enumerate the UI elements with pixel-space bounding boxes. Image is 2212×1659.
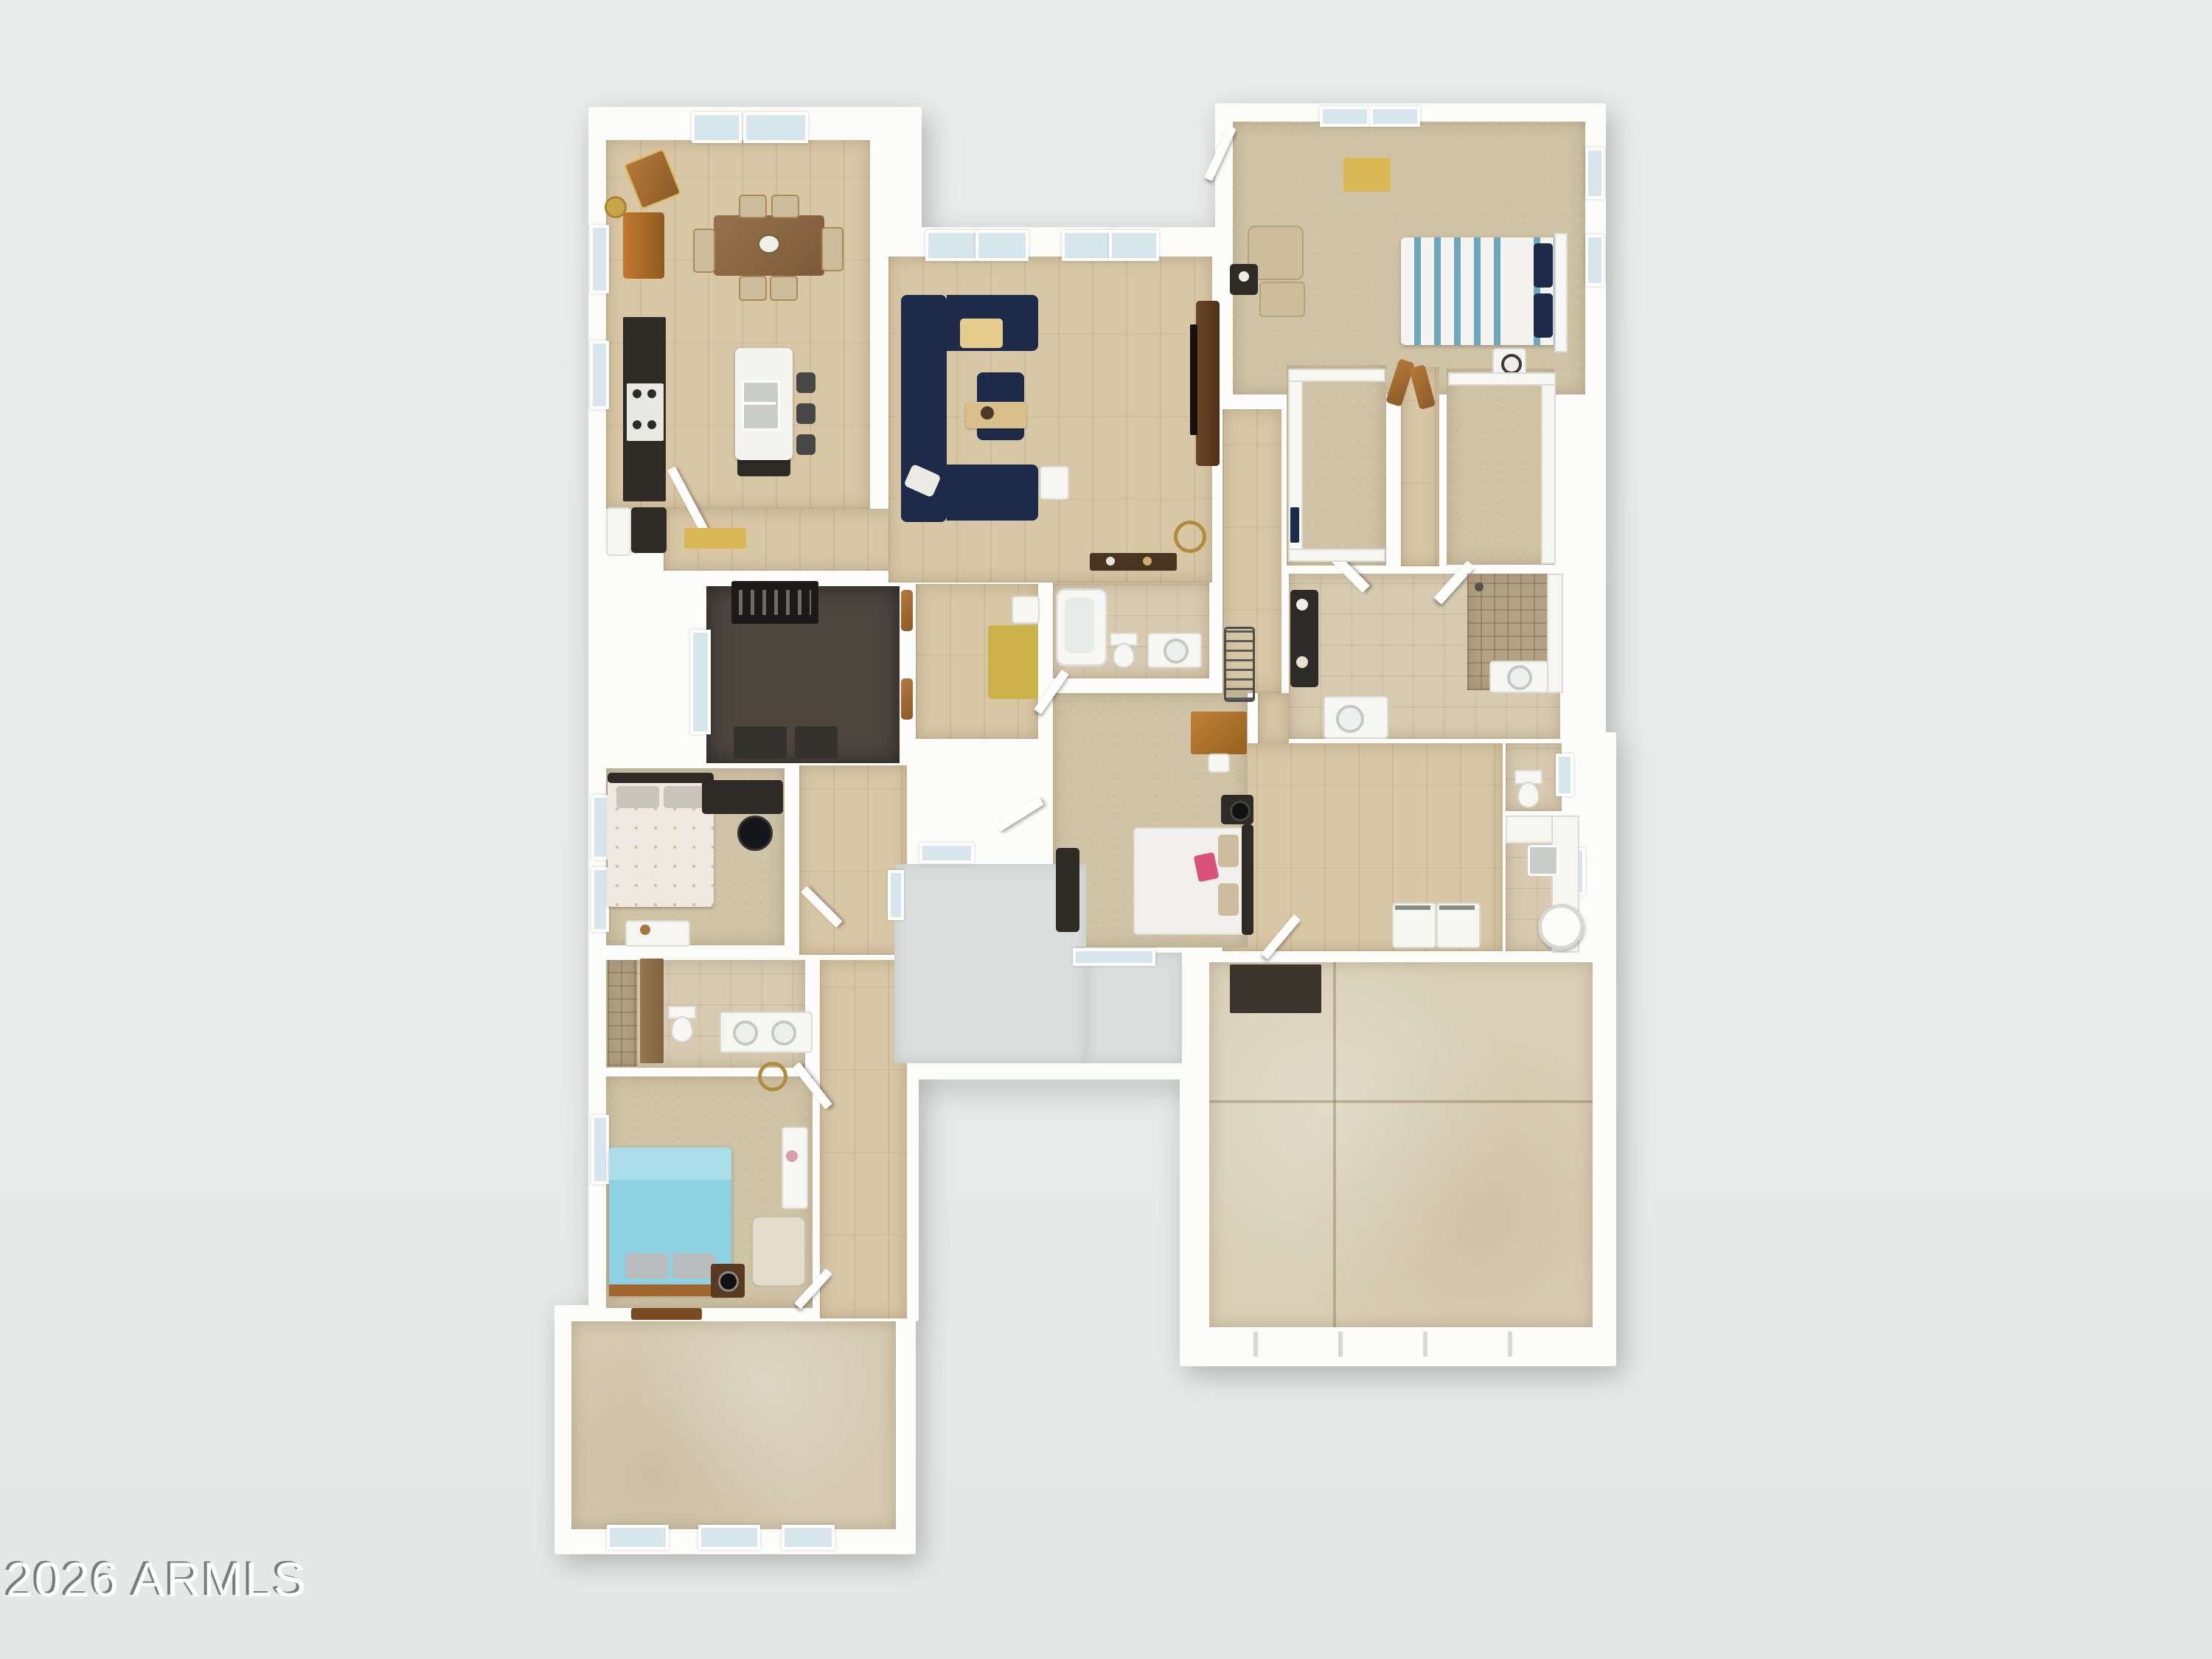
bar-stool	[796, 403, 815, 424]
window	[1585, 147, 1604, 199]
shower-head	[1475, 582, 1484, 591]
window	[590, 341, 609, 409]
appliance-control-strip	[1439, 905, 1475, 910]
nook-vanity	[1012, 596, 1040, 624]
toilet-bowl	[671, 1016, 693, 1043]
gym-equipment	[734, 726, 787, 759]
window	[1073, 948, 1155, 966]
bed-pillow	[616, 786, 659, 808]
dining-chair	[771, 195, 799, 218]
garage-joint-vertical	[1333, 962, 1336, 1327]
garage-door-seam	[1423, 1332, 1427, 1357]
window	[782, 1525, 835, 1550]
bed-pillow	[1218, 835, 1239, 867]
desk-stool	[1208, 754, 1230, 773]
master-bed-pillow	[1534, 243, 1553, 288]
dining-chair	[693, 229, 715, 273]
table-centerpiece	[759, 236, 779, 252]
island-sink-divider	[742, 402, 776, 405]
dining-chair	[770, 276, 798, 301]
closet-shelf	[1448, 372, 1556, 386]
bar-stool	[796, 372, 815, 393]
hall-corridor-stub	[1258, 693, 1289, 745]
window	[698, 1525, 760, 1550]
office-chair	[737, 815, 773, 851]
garage-door-seam	[1338, 1332, 1343, 1357]
bedroom3-desk	[702, 780, 783, 814]
closet-shelf	[1288, 549, 1385, 562]
window	[591, 795, 609, 860]
bedroom2-headboard	[1242, 824, 1253, 935]
garage-floor	[1209, 962, 1593, 1327]
closet-shelf	[1541, 372, 1556, 564]
master-headboard	[1554, 233, 1568, 352]
watermark: 2026 ARMLS	[6, 1551, 307, 1607]
window	[590, 225, 609, 293]
window	[888, 870, 904, 920]
bed-bench	[1343, 158, 1391, 192]
water-heater	[1538, 904, 1584, 950]
window	[1556, 754, 1573, 796]
vanity-sink	[1164, 639, 1189, 664]
barbell-row	[739, 590, 811, 615]
window	[1320, 106, 1370, 127]
bedroom2-desk	[1191, 712, 1247, 754]
appliance-control-strip	[1395, 905, 1430, 910]
hanging-clothes	[1290, 507, 1299, 543]
dining-chair	[821, 227, 844, 271]
flower-vase	[786, 1150, 798, 1162]
island-sink	[742, 380, 780, 431]
closet-right-floor	[1447, 369, 1554, 565]
closet-shelf	[1288, 369, 1385, 382]
garage-door-seam	[1253, 1332, 1258, 1357]
range-burner	[633, 420, 641, 429]
bedroom4-armchair	[751, 1215, 807, 1287]
gym-wood-door	[901, 678, 913, 720]
shower-ledge	[1547, 574, 1563, 693]
speaker	[1230, 801, 1251, 821]
sofa-throw-blanket	[960, 319, 1003, 348]
patio-grill	[631, 1308, 702, 1320]
refrigerator	[606, 507, 631, 556]
buffet-cabinet	[623, 212, 664, 279]
floor-plan	[0, 0, 2212, 1659]
window	[591, 1115, 609, 1184]
towel-stack	[1296, 599, 1308, 611]
speaker-cone	[718, 1271, 739, 1292]
bedroom3-bench	[625, 920, 690, 947]
toilet-bowl	[1517, 782, 1540, 808]
bed-pillow	[625, 1253, 668, 1279]
wall-porch-south	[894, 1063, 1194, 1079]
vanity-sink	[733, 1020, 758, 1046]
wall-clock	[605, 196, 627, 218]
decor-item	[640, 925, 650, 935]
vanity-sink	[1507, 665, 1532, 690]
floor-lamp	[1174, 521, 1206, 553]
window	[1370, 106, 1420, 127]
hall-runner-rug	[684, 528, 746, 549]
decor-item	[1106, 557, 1115, 566]
dining-chair	[739, 276, 767, 301]
window	[743, 112, 808, 143]
window	[1585, 234, 1604, 286]
tv-console	[1196, 301, 1220, 466]
utility-sink	[1528, 845, 1559, 876]
bedroom3-headboard	[608, 773, 714, 783]
window	[692, 112, 742, 143]
range-burner	[647, 389, 656, 398]
side-table	[1040, 466, 1069, 500]
garage-door-seam	[1508, 1332, 1512, 1357]
garage-mat	[1230, 964, 1321, 1013]
daybed-bench	[988, 625, 1038, 699]
sliding-glass-door	[975, 230, 1029, 261]
bedroom2-dresser	[1056, 848, 1079, 932]
range-burner	[633, 389, 641, 398]
kitchen-lower-cabinet	[631, 507, 667, 553]
chair-ottoman	[1259, 282, 1305, 317]
bar-stool	[796, 434, 815, 455]
sliding-glass-door	[1109, 230, 1159, 261]
bed-pillow	[664, 786, 706, 808]
bedroom4-desk	[782, 1127, 808, 1209]
bathtub-basin	[1065, 597, 1094, 653]
left-hall-upper-floor	[799, 765, 907, 955]
window	[690, 630, 711, 734]
toilet-bowl	[1113, 643, 1135, 668]
sliding-glass-door	[1062, 230, 1112, 261]
master-bed-sheet	[1504, 237, 1534, 345]
screenshot-canvas: { "watermark": { "text": "2026 ARMLS" },…	[0, 0, 2212, 1659]
bath2-shower	[608, 960, 637, 1066]
gym-equipment	[795, 726, 838, 759]
bath2-barn-door	[640, 959, 664, 1063]
media-console-table	[1090, 553, 1177, 571]
bed-pillow	[1218, 883, 1239, 916]
patio-floor	[571, 1321, 896, 1529]
dining-chair	[739, 195, 767, 218]
tv-screen	[1190, 324, 1197, 435]
sliding-glass-door	[925, 230, 978, 261]
table-lamp	[1501, 354, 1522, 375]
window	[591, 867, 609, 932]
window	[607, 1525, 669, 1550]
decor-item	[1143, 557, 1152, 566]
vanity-sink	[1336, 705, 1364, 733]
floor-lamp	[758, 1062, 787, 1091]
bed-pillow	[672, 1253, 715, 1279]
porch-floor-right	[1086, 953, 1182, 1063]
coffee-table-tray	[981, 406, 994, 420]
flower-vase	[1239, 271, 1249, 282]
master-bed-pillow	[1534, 293, 1553, 338]
vanity-sink	[771, 1020, 796, 1046]
window	[919, 843, 974, 863]
wire-shelving-rack	[1224, 627, 1255, 702]
coffee-table	[966, 402, 1026, 428]
range-burner	[647, 420, 656, 429]
sectional-sofa-bottom-arm	[947, 465, 1038, 521]
garage-joint-horizontal	[1209, 1100, 1593, 1103]
flower-vase	[1296, 656, 1308, 668]
gym-wood-door	[901, 590, 913, 631]
